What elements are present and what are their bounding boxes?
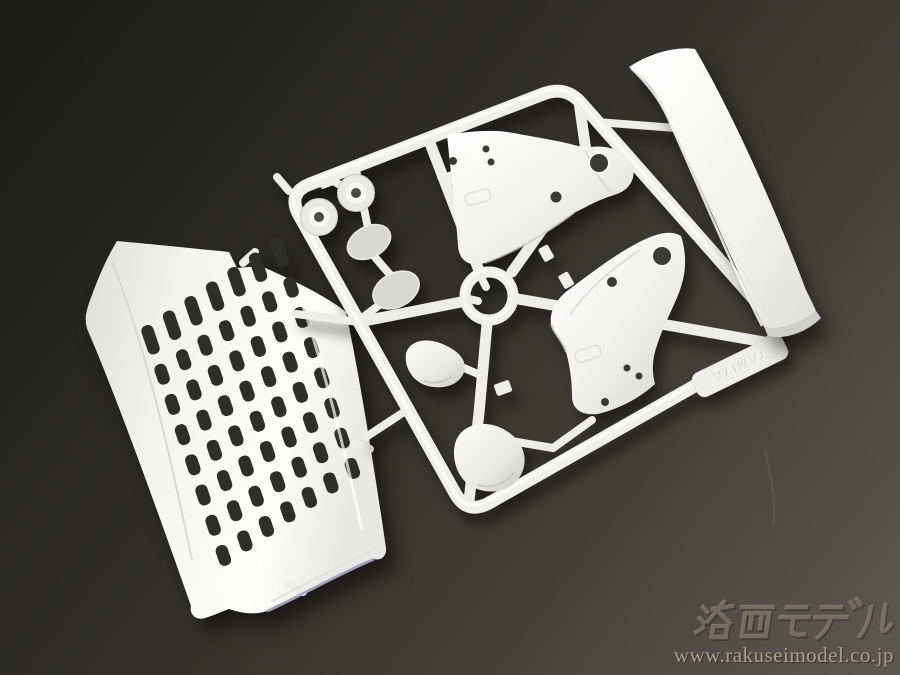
large-hole (653, 247, 671, 265)
frame-corner-nub (277, 177, 289, 191)
hub-ring-nub (481, 277, 486, 287)
watermark-logo (695, 599, 895, 639)
mirror-shell-lower (454, 424, 525, 492)
grille-slot (269, 237, 290, 269)
hub-ring (464, 271, 513, 321)
photo-of-model-sprue: TAMIYA TAMIYA (0, 0, 900, 675)
gate-tab (493, 380, 512, 397)
grommet-2 (338, 175, 375, 212)
mount-hole (449, 157, 457, 165)
mount-hole (551, 192, 562, 203)
sprue-scene: TAMIYA TAMIYA (0, 0, 900, 675)
hub-ring-nub (469, 299, 478, 301)
mount-hole (483, 146, 490, 153)
fender-lower-part (551, 233, 685, 415)
background-scratch (765, 450, 774, 525)
mirror-shell-upper (406, 340, 465, 387)
mirror-face-1 (341, 218, 396, 267)
gate-tab (538, 244, 555, 262)
mount-hole (624, 365, 631, 372)
mount-hole (607, 277, 617, 287)
large-hole (590, 154, 608, 172)
watermark-url: www.rakuseimodel.co.jp (674, 643, 894, 668)
mount-hole (601, 398, 609, 406)
mirror-shell-stem (464, 368, 478, 374)
mount-hole (636, 373, 643, 380)
runner-left-cut-stub-2 (366, 410, 407, 437)
grommet-1 (301, 199, 338, 236)
gate-tab (558, 271, 575, 289)
fender-upper-part (447, 131, 633, 265)
mount-hole (488, 159, 495, 166)
